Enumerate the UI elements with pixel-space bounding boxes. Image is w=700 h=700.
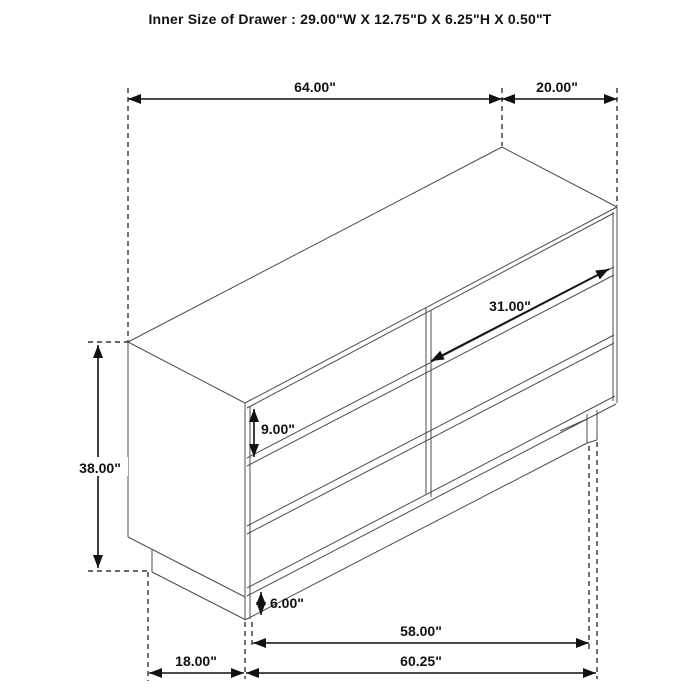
dresser-dimension-diagram: Inner Size of Drawer : 29.00"W X 12.75"D… bbox=[0, 0, 700, 700]
dim-label-base-width: 58.00" bbox=[400, 623, 442, 639]
dim-label-top-width: 64.00" bbox=[294, 79, 336, 95]
plinth-reveal-edge bbox=[560, 419, 587, 431]
top-back-right-edge bbox=[502, 147, 617, 207]
dim-drawer-width-arrow bbox=[431, 269, 609, 361]
front-floor-edge bbox=[245, 443, 587, 620]
dimension-lines bbox=[98, 99, 617, 673]
diagram-svg: Inner Size of Drawer : 29.00"W X 12.75"D… bbox=[0, 0, 700, 700]
dim-label-top-depth: 20.00" bbox=[536, 79, 578, 95]
dim-label-drawer-width: 31.00" bbox=[489, 298, 531, 314]
side-bottom-edge bbox=[128, 537, 245, 597]
diagram-title: Inner Size of Drawer : 29.00"W X 12.75"D… bbox=[148, 11, 551, 27]
dim-label-side-depth: 18.00" bbox=[175, 653, 217, 669]
extension-lines bbox=[88, 88, 617, 681]
dim-label-overall-height: 38.00" bbox=[79, 460, 121, 476]
dresser-drawing bbox=[128, 147, 617, 620]
leg-bottom-edge bbox=[587, 440, 597, 443]
plinth-floor-edge bbox=[152, 572, 246, 620]
top-back-left-edge bbox=[128, 147, 502, 342]
dim-label-base-height: 6.00" bbox=[270, 595, 304, 611]
dim-label-drawer-height: 9.00" bbox=[261, 421, 295, 437]
dim-label-total-width: 60.25" bbox=[400, 653, 442, 669]
top-left-front-edge bbox=[128, 342, 245, 403]
